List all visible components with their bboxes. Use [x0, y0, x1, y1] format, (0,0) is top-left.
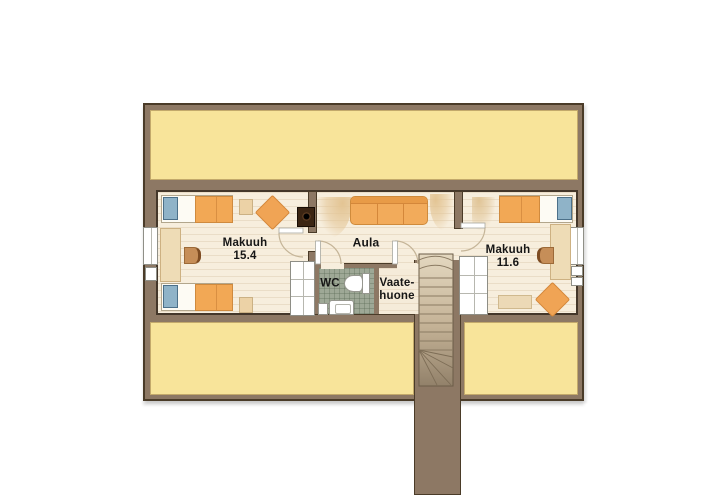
sofa [350, 196, 428, 225]
attic-space-bottom-right [464, 322, 578, 395]
closet-bedroom-left [290, 261, 315, 316]
pillow [163, 197, 178, 220]
bed-right [499, 195, 573, 223]
window-left [143, 227, 158, 265]
chair-bedroom-left [184, 247, 201, 264]
pillow [163, 285, 178, 308]
stairwell-walls [414, 260, 461, 495]
window-right-vent [571, 266, 583, 276]
bench-bedroom-right [498, 295, 532, 309]
blanket [195, 284, 233, 311]
desk-bedroom-left [160, 228, 181, 282]
pillow [557, 197, 572, 220]
room-name: WC [320, 278, 340, 291]
attic-space-bottom-left [150, 322, 414, 395]
blanket [195, 196, 233, 223]
room-name-line1: Vaate- [379, 277, 415, 290]
window-right [569, 227, 584, 265]
label-hall: Aula [353, 237, 380, 250]
label-wardrobe: Vaate- huone [379, 277, 415, 303]
side-table-top [239, 199, 253, 215]
room-name: Aula [353, 237, 380, 250]
sink-vanity [329, 300, 354, 315]
flue-icon [302, 212, 311, 221]
room-area: 11.6 [486, 257, 531, 270]
room-name-line2: huone [379, 290, 415, 303]
blanket [499, 196, 540, 223]
window-left-vent [145, 267, 157, 281]
window-right-vent [571, 277, 583, 286]
wall-bedroom-right-upper [454, 191, 463, 229]
wc-door-opening [321, 263, 344, 269]
side-table-bottom [239, 297, 253, 313]
chair-bedroom-right [537, 247, 554, 264]
bed-left-bottom [161, 283, 233, 311]
toilet-bowl [344, 275, 363, 292]
wardrobe-door-opening [397, 263, 419, 269]
label-wc: WC [320, 278, 340, 291]
label-bedroom-right: Makuuh 11.6 [486, 244, 531, 270]
closet-bedroom-right [459, 256, 488, 315]
room-area: 15.4 [223, 250, 268, 263]
wc-cabinet [318, 303, 328, 315]
room-name: Makuuh [486, 244, 531, 257]
toilet-tank [362, 273, 370, 294]
attic-space-top [150, 110, 578, 180]
fireplace-stove [297, 207, 315, 227]
label-bedroom-left: Makuuh 15.4 [223, 237, 268, 263]
bed-left-top [161, 195, 233, 223]
floor-plan-canvas: Makuuh 15.4 Aula WC Vaate- huone Makuuh … [0, 0, 724, 503]
room-name: Makuuh [223, 237, 268, 250]
